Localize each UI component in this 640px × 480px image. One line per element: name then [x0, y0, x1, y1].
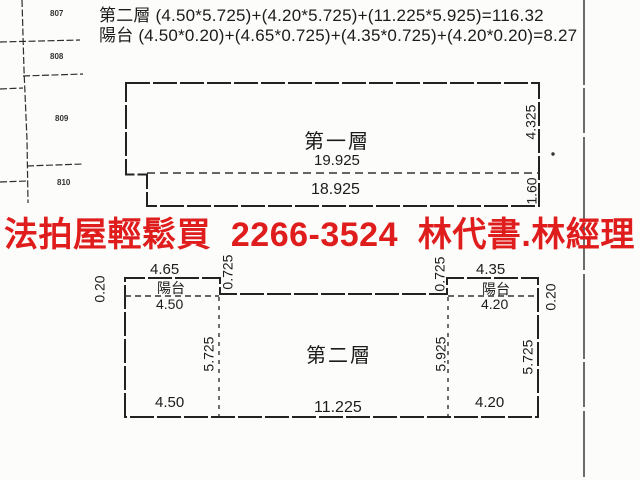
cadastral-boundary-lines [0, 0, 83, 203]
ad-banner: 法拍屋輕鬆買 2266-3524 林代書.林經理 [4, 216, 635, 255]
balcony-right-label: 陽台 [482, 281, 510, 297]
balcony-right-depth: 0.725 [431, 257, 447, 292]
parcel-number: 810 [57, 178, 70, 187]
balcony-right-outer-width: 4.35 [476, 261, 505, 278]
formula-balcony-area: 陽台 (4.50*0.20)+(4.65*0.725)+(4.35*0.725)… [99, 26, 577, 46]
balcony-right-inner-width: 4.20 [481, 296, 508, 312]
floor2-bottom-mid-width: 11.225 [314, 399, 362, 417]
balcony-left-label: 陽台 [157, 280, 185, 296]
balcony-right-side: 0.20 [543, 283, 559, 310]
floor2-mid-height: 5.925 [432, 337, 448, 372]
formula-floor2-area: 第二層 (4.50*5.725)+(4.20*5.725)+(11.225*5.… [99, 6, 544, 26]
floor1-label: 第一層 [304, 131, 370, 154]
balcony-left-inner-width: 4.50 [156, 296, 183, 312]
floor2-bottom-left-width: 4.50 [155, 394, 184, 411]
balcony-left-depth: 0.725 [219, 255, 235, 290]
floor2-label: 第二層 [306, 345, 372, 368]
floor1-right-height-lower: 1.60 [524, 177, 540, 204]
balcony-left-side: 0.20 [92, 275, 108, 302]
ink-dot [551, 152, 554, 155]
floor2-bottom-right-width: 4.20 [475, 394, 504, 411]
floor2-right-height: 5.725 [519, 340, 535, 375]
floor1-upper-width: 19.925 [314, 152, 360, 169]
balcony-left-outer-width: 4.65 [150, 261, 179, 278]
floor1-right-height-upper: 4.325 [522, 105, 538, 140]
scanned-floorplan-page: 第二層 (4.50*5.725)+(4.20*5.725)+(11.225*5.… [0, 0, 640, 480]
floor2-left-height: 5.725 [200, 337, 216, 372]
floor1-lower-width: 18.925 [311, 181, 360, 199]
parcel-number: 808 [50, 52, 63, 61]
parcel-number: 807 [50, 9, 63, 18]
parcel-number: 809 [55, 114, 68, 123]
